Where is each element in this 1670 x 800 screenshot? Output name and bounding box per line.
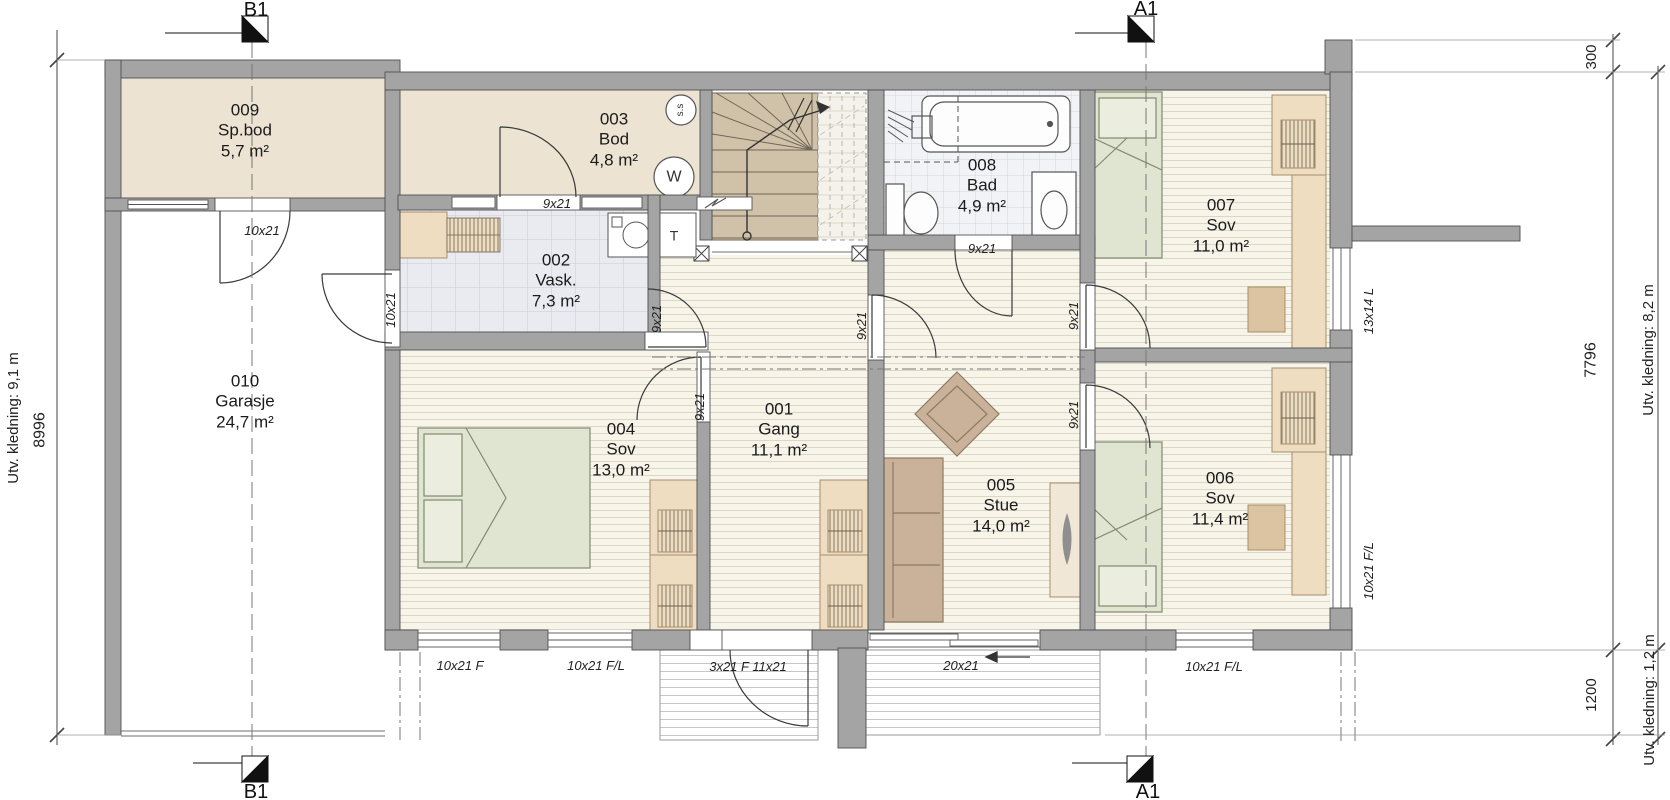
opening-label: 13x14 L: [1361, 288, 1377, 334]
opening-label: 9x21: [1066, 401, 1082, 429]
opening-label: 9x21: [692, 393, 708, 421]
water-heater-label: W: [666, 167, 681, 186]
room-label-gang: 001Gang11,1 m²: [751, 399, 807, 460]
opening-label: 9x21: [854, 312, 870, 340]
toilet-tank: [886, 184, 904, 242]
dim-left-total: 8996: [30, 412, 49, 448]
chair: [1248, 505, 1285, 550]
dim-right-cladding-bottom: Utv. kledning: 1,2 m: [1641, 634, 1659, 765]
dim-left-cladding: Utv. kledning: 9,1 m: [5, 352, 23, 483]
double-bed: [418, 428, 590, 568]
terrace: [866, 650, 1100, 735]
chair: [1248, 287, 1285, 332]
section-label-a1-top: A1: [1134, 0, 1158, 21]
opening-label: 9x21: [543, 196, 571, 212]
section-label-b1-bottom: B1: [244, 780, 268, 800]
floor-plan: 001Gang11,1 m² 002Vask.7,3 m² 003Bod4,8 …: [0, 0, 1670, 800]
room-label-bad: 008Bad4,9 m²: [958, 155, 1006, 216]
section-label-a1-bottom: A1: [1136, 780, 1160, 800]
room-label-sov4: 004Sov13,0 m²: [592, 419, 650, 480]
sprinkler-label: s.s: [675, 104, 687, 117]
opening-label: 10x21: [244, 223, 279, 239]
room-label-stue: 005Stue14,0 m²: [972, 475, 1030, 536]
dryer-label: T: [670, 228, 679, 245]
opening-label: 10x21 F/L: [567, 658, 625, 674]
garage-open-edge: [121, 731, 385, 736]
single-bed: [1093, 92, 1162, 258]
opening-label: 3x21 F 11x21: [709, 659, 787, 675]
opening-label: 10x21 F: [437, 658, 484, 674]
opening-label: 10x21: [383, 292, 399, 327]
room-label-sov7: 007Sov11,0 m²: [1193, 195, 1249, 256]
wardrobe: [820, 480, 868, 630]
room-label-spbod: 009Sp.bod5,7 m²: [218, 100, 272, 161]
opening-label: 9x21: [968, 241, 996, 257]
dim-right-cladding-main: Utv. kledning: 8,2 m: [1640, 284, 1658, 415]
washing-machine-icon: [608, 213, 652, 257]
room-label-sov6: 006Sov11,4 m²: [1192, 468, 1248, 529]
room-label-vask: 002Vask.7,3 m²: [532, 250, 580, 311]
room-label-bod: 003Bod4,8 m²: [590, 109, 638, 170]
opening-label: 10x21 F/L: [1361, 542, 1377, 600]
opening-label: 9x21: [649, 305, 665, 333]
dim-right-top: 300: [1583, 44, 1601, 69]
dim-right-bottom: 1200: [1583, 678, 1601, 711]
wardrobe: [650, 480, 698, 630]
sofa: [877, 458, 943, 622]
opening-label: 9x21: [1066, 302, 1082, 330]
section-label-b1-top: B1: [244, 0, 268, 22]
dim-right-main: 7796: [1581, 342, 1600, 378]
toilet-bowl: [904, 192, 938, 234]
room-label-garasje: 010Garasje24,7 m²: [215, 371, 275, 432]
single-bed: [1093, 442, 1162, 612]
staircase: [694, 93, 867, 261]
opening-label: 10x21 F/L: [1185, 659, 1243, 675]
opening-label: 20x21: [943, 658, 978, 674]
